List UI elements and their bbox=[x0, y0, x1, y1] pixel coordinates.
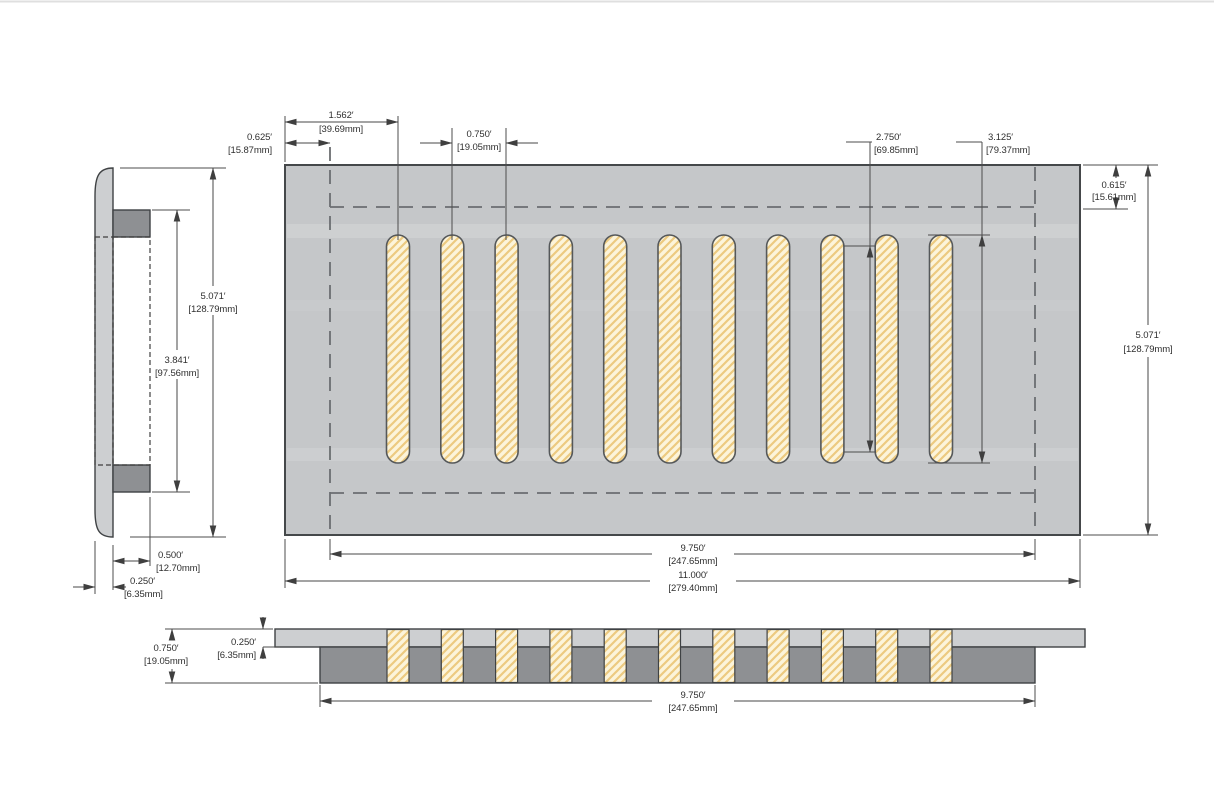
vent-slot bbox=[387, 235, 410, 463]
side-bottom-collar bbox=[113, 465, 150, 492]
vent-slot-section bbox=[604, 630, 626, 683]
vent-slot-section bbox=[767, 630, 789, 683]
vent-slot-section bbox=[713, 630, 735, 683]
dim-top-margin: 0.615′ [15.61mm] bbox=[1083, 165, 1158, 209]
dimension-label-mm: [19.05mm] bbox=[457, 142, 501, 153]
dim-side-flange-thickness: 0.250′ [6.35mm] bbox=[73, 541, 163, 600]
vent-slot-section bbox=[550, 630, 572, 683]
dimension-label-mm: [39.69mm] bbox=[319, 124, 363, 135]
dimension-label-in: 0.750′ bbox=[467, 129, 492, 140]
vent-slot bbox=[767, 235, 790, 463]
dimension-label-mm: [69.85mm] bbox=[874, 145, 918, 156]
vent-cover-dimensional-drawing: 1.562′ [39.69mm] 0.625′ [15.87mm] 0.750′… bbox=[0, 0, 1214, 809]
dimension-label-in: 11.000′ bbox=[678, 570, 708, 581]
vent-slot bbox=[495, 235, 518, 463]
vent-slot-section bbox=[441, 630, 463, 683]
dimension-label-mm: [6.35mm] bbox=[217, 650, 256, 661]
dimension-label-in: 0.250′ bbox=[231, 637, 256, 648]
dimension-label-in: 5.071′ bbox=[1136, 330, 1161, 341]
side-top-collar bbox=[113, 210, 150, 237]
dimension-label-in: 2.750′ bbox=[876, 132, 901, 143]
dimension-label-mm: [15.61mm] bbox=[1092, 192, 1136, 203]
vent-slot bbox=[930, 235, 953, 463]
side-faceplate-flange bbox=[95, 168, 113, 537]
vent-slot bbox=[604, 235, 627, 463]
dim-bottom-opening-width: 9.750′ [247.65mm] bbox=[320, 685, 1035, 714]
side-view bbox=[95, 168, 150, 537]
dimension-label-in: 3.841′ bbox=[165, 355, 190, 366]
dimension-label-mm: [15.87mm] bbox=[228, 145, 272, 156]
dimension-label-in: 0.500′ bbox=[158, 550, 183, 561]
dimension-label-in: 3.125′ bbox=[988, 132, 1013, 143]
dim-opening-width: 9.750′ [247.65mm] bbox=[330, 539, 1035, 567]
vent-slot-section bbox=[659, 630, 681, 683]
dimension-label-in: 0.750′ bbox=[154, 643, 179, 654]
dimension-label-in: 9.750′ bbox=[681, 543, 706, 554]
vent-slot bbox=[875, 235, 898, 463]
vent-slot-section bbox=[930, 630, 952, 683]
vent-slot bbox=[712, 235, 735, 463]
dimension-label-in: 0.625′ bbox=[247, 132, 272, 143]
dimension-label-in: 0.250′ bbox=[130, 576, 155, 587]
vent-slot bbox=[549, 235, 572, 463]
dim-side-inner-height: 3.841′ [97.56mm] bbox=[152, 210, 199, 492]
dim-front-height: 5.071′ [128.79mm] bbox=[1083, 165, 1173, 535]
dimension-label-in: 9.750′ bbox=[681, 690, 706, 701]
vent-slot-section bbox=[496, 630, 518, 683]
plate-sheen-band bbox=[287, 224, 1078, 238]
dimension-label-mm: [6.35mm] bbox=[124, 589, 163, 600]
dimension-label-mm: [12.70mm] bbox=[156, 563, 200, 574]
front-view bbox=[285, 147, 1080, 535]
vent-slot bbox=[658, 235, 681, 463]
dim-bottom-plate-thickness: 0.250′ [6.35mm] bbox=[217, 617, 280, 661]
vent-slot-section bbox=[821, 630, 843, 683]
dimension-label-mm: [279.40mm] bbox=[668, 583, 717, 594]
drawing-canvas: 1.562′ [39.69mm] 0.625′ [15.87mm] 0.750′… bbox=[0, 0, 1214, 809]
side-duct-hatch bbox=[113, 237, 150, 465]
dimension-label-in: 0.615′ bbox=[1102, 180, 1127, 191]
vent-slot-section bbox=[387, 630, 409, 683]
dimension-label-mm: [128.79mm] bbox=[1123, 344, 1172, 355]
dimension-label-mm: [247.65mm] bbox=[668, 556, 717, 567]
dimension-label-in: 5.071′ bbox=[201, 291, 226, 302]
dimension-label-mm: [79.37mm] bbox=[986, 145, 1030, 156]
vent-slot-section bbox=[876, 630, 898, 683]
dimension-label-mm: [19.05mm] bbox=[144, 656, 188, 667]
dimension-label-in: 1.562′ bbox=[329, 110, 354, 121]
dimension-label-mm: [128.79mm] bbox=[188, 304, 237, 315]
dim-edge-to-opening: 0.625′ [15.87mm] bbox=[228, 132, 330, 156]
dim-side-depth: 0.500′ [12.70mm] bbox=[113, 497, 200, 590]
dimension-label-mm: [97.56mm] bbox=[155, 368, 199, 379]
vent-slot bbox=[441, 235, 464, 463]
bottom-view bbox=[275, 629, 1085, 683]
vent-slot bbox=[821, 235, 844, 463]
dimension-label-mm: [247.65mm] bbox=[668, 703, 717, 714]
